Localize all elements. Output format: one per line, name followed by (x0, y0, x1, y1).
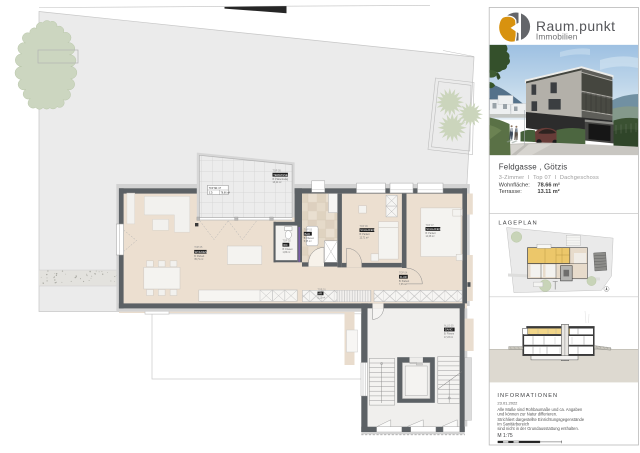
svg-text:23.01.2022: 23.01.2022 (497, 401, 518, 406)
svg-text:WC: WC (283, 243, 288, 247)
svg-text:B: Fliesen: B: Fliesen (283, 249, 294, 251)
svg-text:GANG: GANG (445, 328, 453, 332)
svg-text:3 Zi: 3 Zi (209, 192, 213, 195)
svg-text:5,05 m²: 5,05 m² (304, 240, 312, 243)
svg-text:TOP 05: TOP 05 (194, 246, 203, 249)
svg-text:BAD: BAD (305, 232, 311, 236)
svg-text:B: Parkett: B: Parkett (426, 232, 436, 235)
svg-text:B: Parkett: B: Parkett (360, 233, 370, 236)
svg-text:B: Plattenbelag: B: Plattenbelag (273, 178, 289, 181)
svg-text:Immobilien: Immobilien (536, 31, 578, 41)
svg-text:Wohnfläche:: Wohnfläche: (499, 182, 530, 188)
svg-text:SCHLAFEN: SCHLAFEN (360, 228, 374, 232)
svg-text:13,11 m²: 13,11 m² (273, 181, 282, 184)
svg-text:ALLG 09: ALLG 09 (444, 324, 454, 327)
svg-text:1,86 m²: 1,86 m² (283, 251, 291, 254)
svg-text:TERRASSE: TERRASSE (273, 173, 288, 177)
svg-text:AR: AR (318, 292, 322, 296)
svg-text:Terrasse:: Terrasse: (499, 189, 522, 195)
svg-text:B: Fliesen: B: Fliesen (304, 238, 315, 240)
svg-text:B: Parkett: B: Parkett (399, 280, 409, 283)
svg-text:WOHNEN: WOHNEN (195, 250, 207, 254)
svg-text:B: Parkett: B: Parkett (194, 255, 204, 258)
svg-text:B: Fliesen: B: Fliesen (444, 334, 455, 336)
svg-text:12,71 m²: 12,71 m² (360, 236, 369, 239)
svg-text:INFORMATIONEN: INFORMATIONEN (497, 393, 558, 399)
svg-text:TOP 04: TOP 04 (399, 272, 408, 275)
svg-text:5,11 m²: 5,11 m² (318, 296, 326, 299)
svg-text:SCHLAFEN: SCHLAFEN (426, 227, 440, 231)
svg-text:78,66 m²: 78,66 m² (221, 192, 231, 195)
svg-text:35,71 m²: 35,71 m² (194, 258, 203, 261)
svg-text:und können zur Natur differier: und können zur Natur differieren. (497, 411, 557, 416)
svg-text:TOP 05: TOP 05 (273, 170, 282, 173)
svg-text:TOP NR. 07: TOP NR. 07 (209, 188, 222, 190)
svg-text:FLUR: FLUR (400, 275, 407, 279)
svg-text:sind nicht in der Grundausstat: sind nicht in der Grundausstattung entha… (497, 426, 578, 431)
svg-text:78.66 m²: 78.66 m² (538, 181, 561, 188)
svg-text:14,08 m²: 14,08 m² (426, 235, 435, 238)
svg-text:TOP 06: TOP 06 (360, 225, 369, 228)
svg-text:LAGEPLAN: LAGEPLAN (498, 221, 537, 227)
svg-text:7,35 m²: 7,35 m² (399, 283, 407, 286)
svg-text:TOP 02: TOP 02 (283, 240, 292, 243)
svg-text:M 1:75: M 1:75 (497, 433, 513, 439)
svg-text:TOP 01: TOP 01 (318, 289, 327, 292)
svg-text:TOP 03: TOP 03 (304, 229, 313, 232)
svg-text:TOP 07: TOP 07 (426, 224, 435, 227)
svg-text:3-Zimmer I Top 07 I Dachge: 3-Zimmer I Top 07 I Dachgeschoss (499, 175, 599, 181)
svg-text:13.11 m²: 13.11 m² (538, 188, 560, 195)
svg-text:Feldgasse , Götzis: Feldgasse , Götzis (499, 162, 568, 171)
svg-text:17,23 m²: 17,23 m² (444, 336, 453, 339)
